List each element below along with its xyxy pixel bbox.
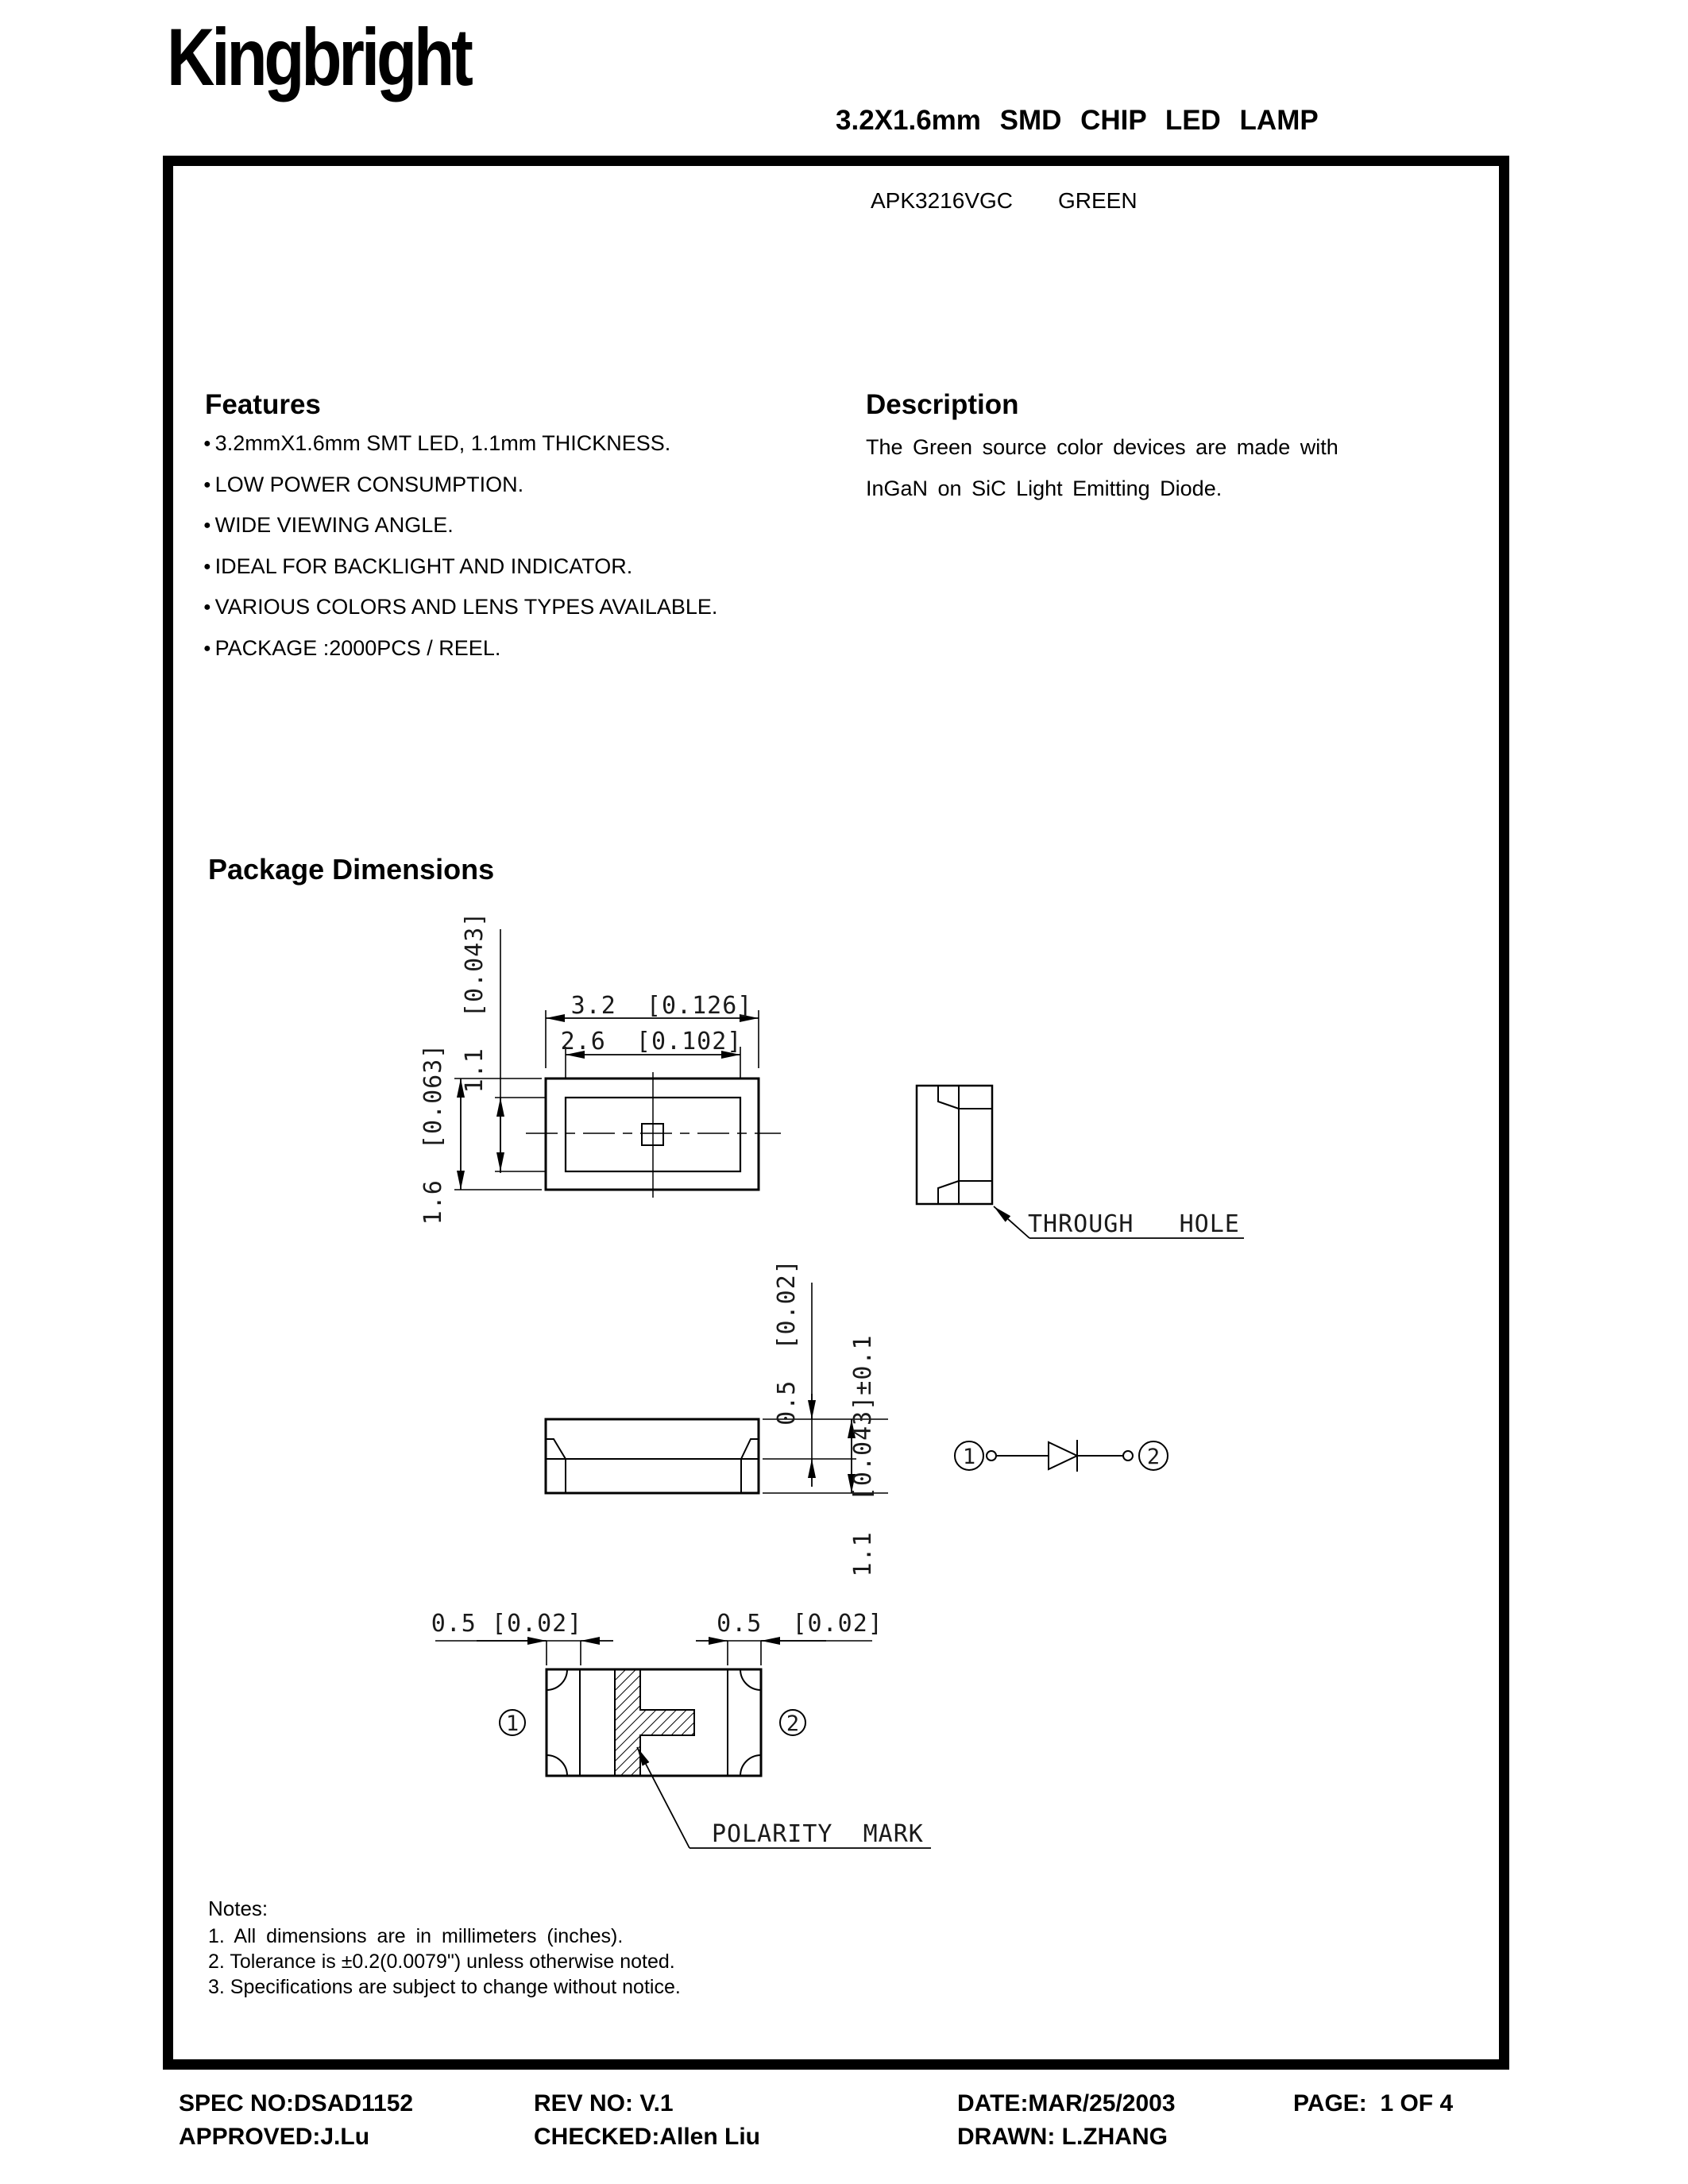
footer-page: PAGE: 1 OF 4 [1293, 2090, 1453, 2117]
footer-spec-no: SPEC NO:DSAD1152 [179, 2090, 413, 2117]
note-item: 2. Tolerance is ±0.2(0.0079") unless oth… [208, 1951, 675, 1974]
footer-approved: APPROVED:J.Lu [179, 2124, 369, 2151]
notes-heading: Notes: [208, 1897, 268, 1921]
pin1-label: 1 [506, 1711, 519, 1736]
through-hole-leader [994, 1206, 1029, 1238]
package-dimensions-drawing: 3.2 [0.126] 2.6 [0.102] 1.1 [0.043] 1.6 … [0, 0, 1688, 2184]
datasheet-page: Kingbright 3.2X1.6mm SMD CHIP LED LAMP A… [0, 0, 1688, 2184]
polarity-mark-label: POLARITY MARK [712, 1820, 924, 1848]
dim-text-0-5-side: 0.5 [0.02] [773, 1259, 801, 1426]
pin1-label: 1 [963, 1445, 975, 1469]
polarity-mark-shape [615, 1669, 694, 1776]
dim-text-1-6: 1.6 [0.063] [419, 1044, 447, 1225]
note-item: 3. Specifications are subject to change … [208, 1976, 681, 1999]
footer-checked: CHECKED:Allen Liu [534, 2124, 760, 2151]
dim-text-1-1: 1.1 [0.043] [461, 912, 489, 1094]
through-hole-label: THROUGH HOLE [1028, 1210, 1240, 1238]
pin2-label: 2 [786, 1711, 799, 1736]
footer-date: DATE:MAR/25/2003 [957, 2090, 1176, 2117]
pin2-label: 2 [1147, 1445, 1160, 1469]
top-view: 3.2 [0.126] 2.6 [0.102] 1.1 [0.043] 1.6 … [419, 912, 781, 1225]
dim-text-2-6: 2.6 [0.102] [561, 1028, 743, 1055]
note-item: 1. All dimensions are in millimeters (in… [208, 1925, 623, 1948]
diode-circuit-symbol: 1 2 [955, 1440, 1168, 1472]
top-view-outline [546, 1078, 759, 1190]
diode-triangle [1049, 1442, 1077, 1469]
side-view-outline [546, 1419, 759, 1493]
footer-drawn: DRAWN: L.ZHANG [957, 2124, 1168, 2151]
end-view: THROUGH HOLE [917, 1086, 1244, 1238]
bottom-view: 1 2 0.5 [0.02] 0.5 [0.02] POLARITY MARK [431, 1610, 931, 1848]
side-view: 0.5 [0.02] 1.1 [0.043]±0.1 [546, 1259, 888, 1576]
footer-rev-no: REV NO: V.1 [534, 2090, 674, 2117]
dim-text-pad-left: 0.5 [0.02] [431, 1610, 583, 1638]
dim-text-pad-right: 0.5 [0.02] [717, 1610, 883, 1638]
dim-text-3-2: 3.2 [0.126] [571, 992, 753, 1020]
dim-text-1-1-side: 1.1 [0.043]±0.1 [849, 1335, 877, 1577]
polarity-mark-leader [637, 1747, 689, 1848]
end-view-outline [917, 1086, 992, 1204]
